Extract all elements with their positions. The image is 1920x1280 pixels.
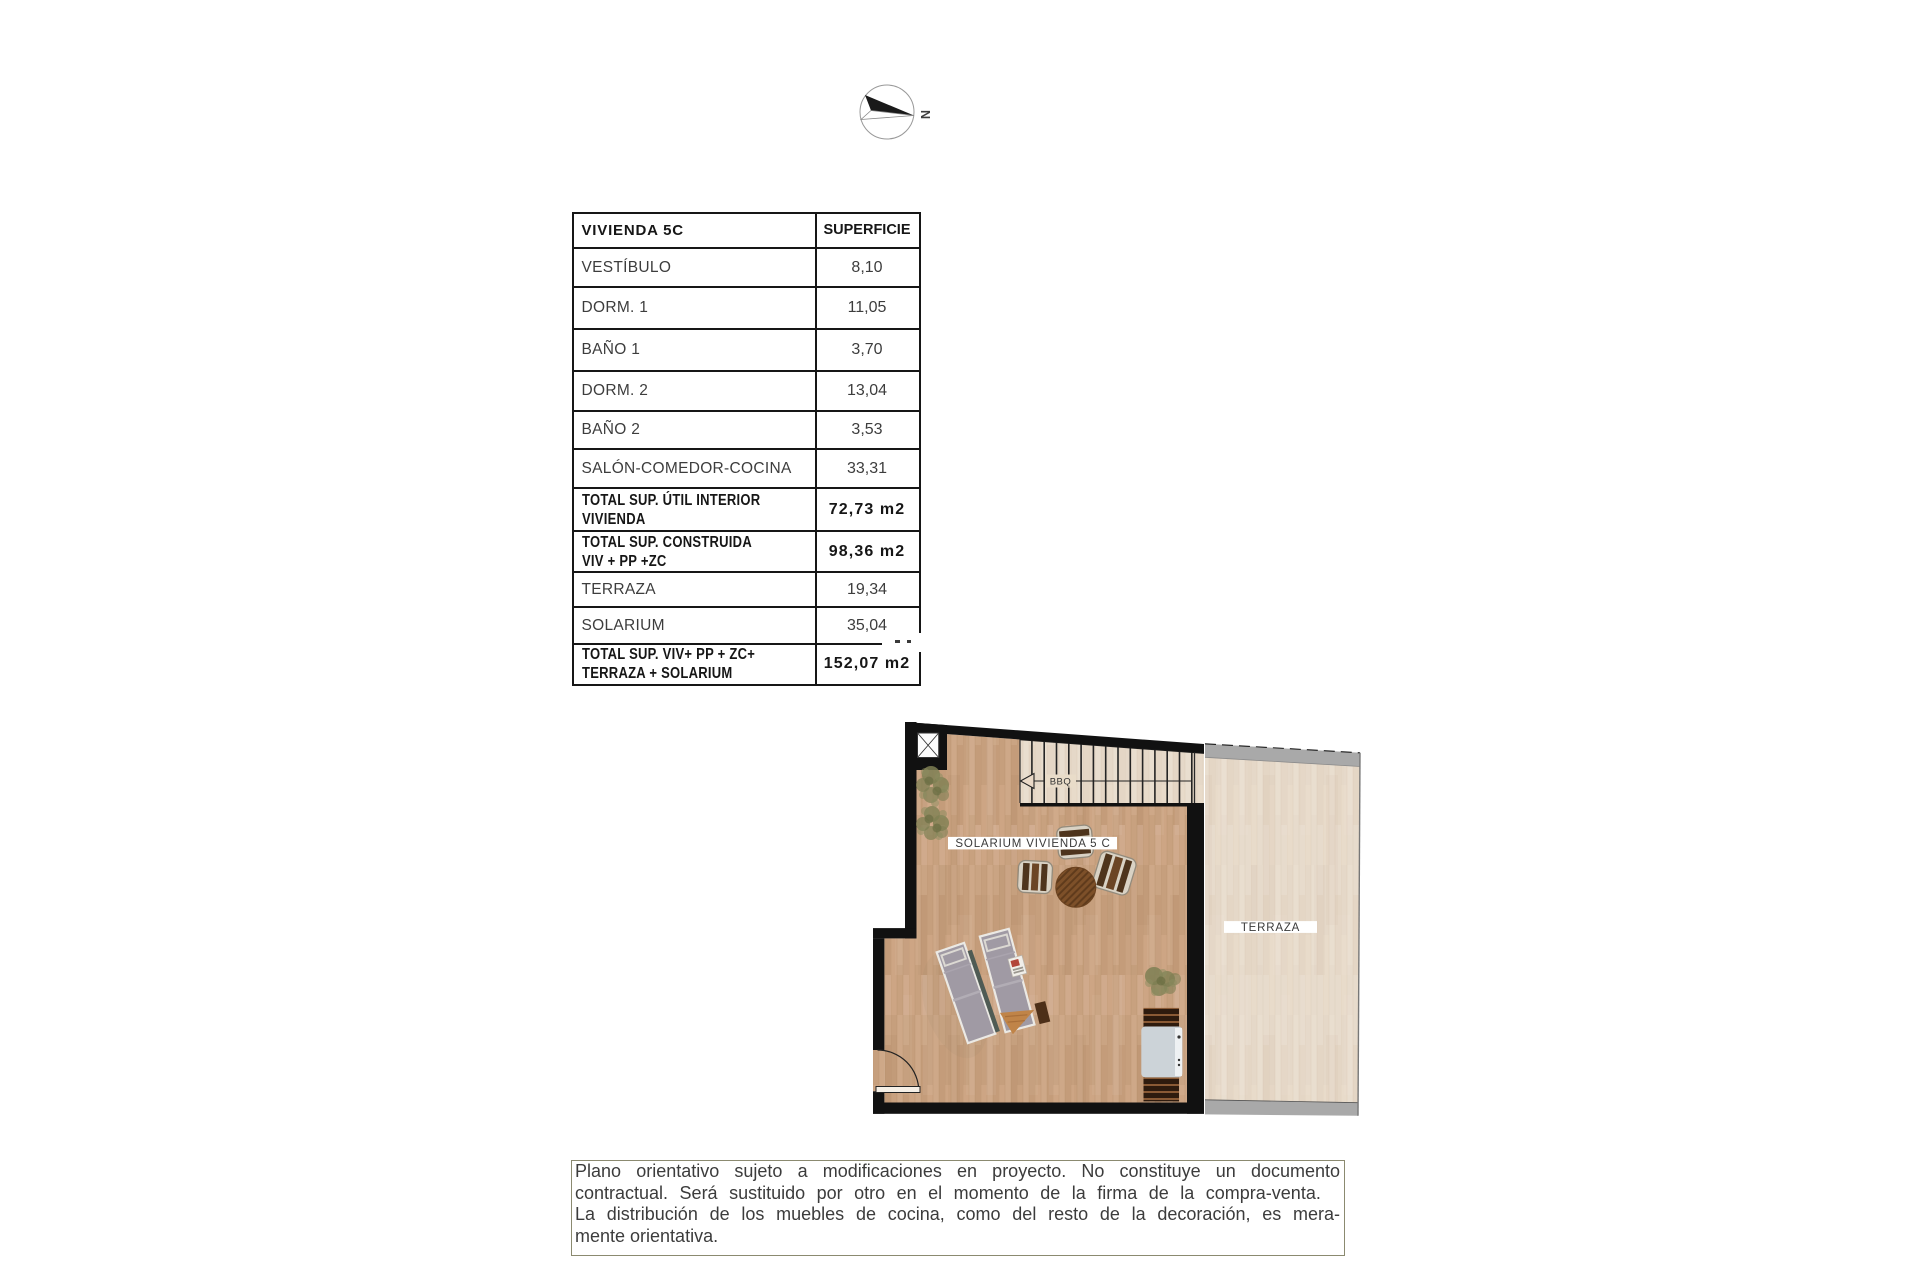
svg-text:N: N <box>918 110 932 119</box>
svg-text:BBQ: BBQ <box>1050 777 1072 788</box>
svg-text:TERRAZA: TERRAZA <box>1241 922 1300 934</box>
svg-text:SOLARIUM VIVIENDA 5 C: SOLARIUM VIVIENDA 5 C <box>955 838 1110 850</box>
